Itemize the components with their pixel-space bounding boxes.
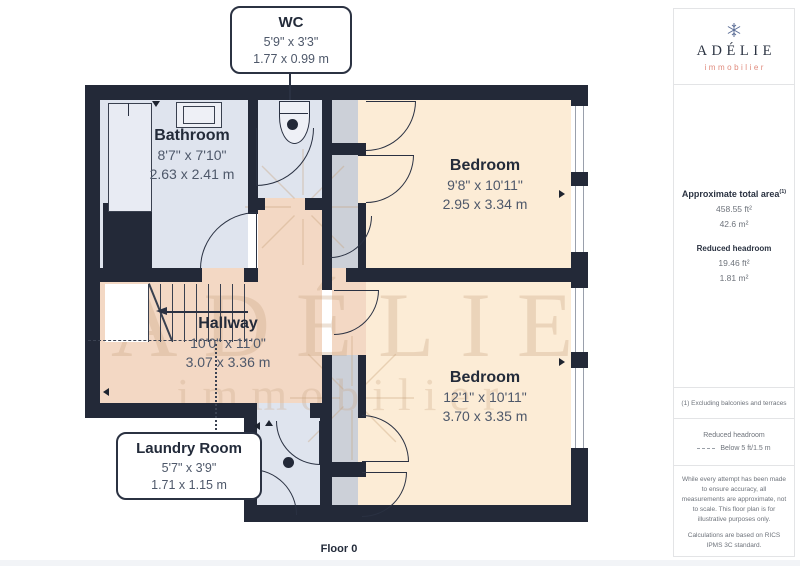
total-area-title-text: Approximate total area xyxy=(682,189,780,199)
closet-mid xyxy=(332,355,358,418)
reduced-headroom-imperial: 19.46 ft² xyxy=(718,258,749,268)
page-bottom-strip xyxy=(0,560,800,566)
brand-name: ADÉLIE xyxy=(692,43,776,60)
washer-symbol xyxy=(283,457,294,468)
wall-segment xyxy=(322,355,332,418)
wall-segment xyxy=(85,85,588,100)
wall-segment xyxy=(358,148,366,156)
legend-title: Reduced headroom xyxy=(703,432,765,439)
total-area-metric: 42.6 m² xyxy=(720,219,749,229)
snowflake-icon xyxy=(726,22,742,38)
wall-segment xyxy=(253,198,265,210)
room-dimension-imperial: 10'0" x 11'0" xyxy=(186,335,271,353)
arrow-marker-icon xyxy=(152,101,160,107)
arrow-marker-icon xyxy=(254,422,260,430)
disclaimer-text: While every attempt has been made to ens… xyxy=(681,475,787,525)
room-name: Bedroom xyxy=(443,368,528,388)
floor-corridor xyxy=(258,198,322,282)
wall-segment xyxy=(322,85,332,290)
room-dimension-metric: 1.77 x 0.99 m xyxy=(240,51,342,67)
room-dimension-imperial: 12'1" x 10'11" xyxy=(443,389,528,407)
disclaimer-section: While every attempt has been made to ens… xyxy=(674,465,794,556)
room-dimension-metric: 3.07 x 3.36 m xyxy=(186,354,271,372)
closet-symbol xyxy=(108,103,152,212)
callout-leader-line xyxy=(289,70,291,100)
reduced-headroom-title: Reduced headroom xyxy=(697,244,772,253)
room-label-bedroom-top: Bedroom 9'8" x 10'11" 2.95 x 3.34 m xyxy=(443,156,528,213)
total-area-imperial: 458.55 ft² xyxy=(716,204,752,214)
room-dimension-metric: 1.71 x 1.15 m xyxy=(126,477,252,493)
wall-segment xyxy=(320,418,332,505)
arrow-marker-icon xyxy=(559,190,565,198)
wall-mass xyxy=(103,203,152,268)
footnote-text: (1) Excluding balconies and terraces xyxy=(681,400,786,407)
wall-segment xyxy=(305,198,322,210)
room-dimension-imperial: 5'7" x 3'9" xyxy=(126,460,252,476)
toilet-cistern-line xyxy=(279,113,308,114)
room-name: Bathroom xyxy=(150,126,235,146)
room-name: Laundry Room xyxy=(126,439,252,459)
room-dimension-metric: 2.95 x 3.34 m xyxy=(443,196,528,214)
callout-laundry: Laundry Room 5'7" x 3'9" 1.71 x 1.15 m xyxy=(116,432,262,500)
floor-bathroom-doorway xyxy=(202,268,244,282)
legend-row: Below 5 ft/1.5 m xyxy=(697,445,770,452)
stair-landing xyxy=(105,284,148,342)
room-dimension-metric: 3.70 x 3.35 m xyxy=(443,408,528,426)
area-section: Approximate total area(1) 458.55 ft² 42.… xyxy=(674,84,794,387)
brand-tagline: immobilier xyxy=(702,63,766,72)
callout-wc: WC 5'9" x 3'3" 1.77 x 0.99 m xyxy=(230,6,352,74)
wall-segment xyxy=(85,403,257,418)
arrow-marker-icon xyxy=(103,388,109,396)
closet-top-1 xyxy=(332,100,358,143)
wall-segment xyxy=(85,100,100,418)
arrow-marker-icon xyxy=(559,358,565,366)
logo-section: ADÉLIE immobilier xyxy=(674,9,794,84)
total-area-title: Approximate total area(1) xyxy=(682,189,786,199)
info-sidebar: ADÉLIE immobilier Approximate total area… xyxy=(673,8,795,557)
standard-text: Calculations are based on RICS IPMS 3C s… xyxy=(681,531,787,551)
wall-segment xyxy=(85,268,202,282)
window xyxy=(571,368,588,448)
window xyxy=(571,106,588,172)
wall-segment xyxy=(244,268,258,282)
window xyxy=(571,288,588,352)
room-dimension-metric: 2.63 x 2.41 m xyxy=(150,166,235,184)
footnote-marker: (1) xyxy=(779,189,786,195)
floorplan-page: ADÉLIE immobilier xyxy=(0,0,800,566)
closet-rail-line xyxy=(128,103,129,116)
room-name: Bedroom xyxy=(443,156,528,176)
closet-bottom-2 xyxy=(332,477,358,505)
reduced-headroom-metric: 1.81 m² xyxy=(720,273,749,283)
wall-segment xyxy=(332,462,366,477)
room-name: Hallway xyxy=(186,314,271,334)
legend-section: Reduced headroom Below 5 ft/1.5 m xyxy=(674,418,794,465)
wall-segment xyxy=(310,403,322,418)
room-label-hallway: Hallway 10'0" x 11'0" 3.07 x 3.36 m xyxy=(186,314,271,371)
closet-bottom-1 xyxy=(332,418,358,462)
room-dimension-imperial: 5'9" x 3'3" xyxy=(240,34,342,50)
room-dimension-imperial: 9'8" x 10'11" xyxy=(443,177,528,195)
sink-basin xyxy=(183,106,215,124)
stair-direction-arrow-icon xyxy=(156,307,167,315)
legend-label: Below 5 ft/1.5 m xyxy=(720,445,770,452)
window xyxy=(571,186,588,252)
room-label-bathroom: Bathroom 8'7" x 7'10" 2.63 x 2.41 m xyxy=(150,126,235,183)
dashed-line-icon xyxy=(697,448,715,449)
room-name: WC xyxy=(240,13,342,33)
footnote-section: (1) Excluding balconies and terraces xyxy=(674,387,794,418)
wall-segment xyxy=(358,355,366,418)
room-dimension-imperial: 8'7" x 7'10" xyxy=(150,147,235,165)
stair-direction-line xyxy=(166,311,248,313)
floor-level-label: Floor 0 xyxy=(289,543,389,555)
room-label-bedroom-bottom: Bedroom 12'1" x 10'11" 3.70 x 3.35 m xyxy=(443,368,528,425)
wall-segment xyxy=(346,268,572,282)
arrow-marker-icon xyxy=(265,420,273,426)
